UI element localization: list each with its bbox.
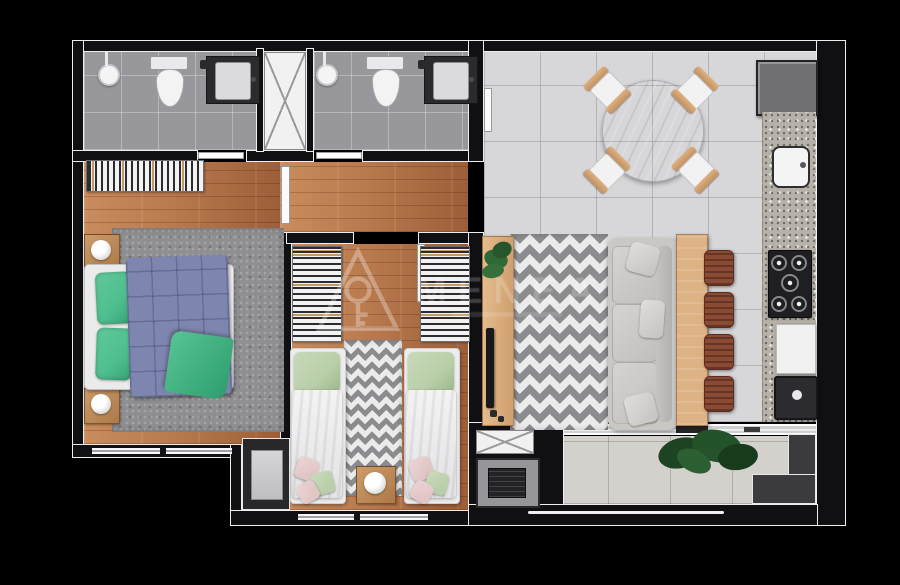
burner-2 (791, 255, 807, 271)
burner-1 (771, 255, 787, 271)
wall-outer-left (72, 40, 84, 458)
toiletries-2 (418, 60, 425, 69)
toilet-tank-2 (366, 56, 404, 70)
living-room-rug (510, 234, 608, 430)
master-window-2 (166, 448, 232, 454)
fridge (756, 60, 818, 116)
master-bedroom-door (281, 166, 290, 224)
wall-bath-bottom-c (362, 150, 474, 162)
wall-hall-bedroom2-left (286, 232, 354, 244)
bed-a-pillow (294, 352, 340, 392)
balcony-bench-horizontal (752, 474, 816, 504)
master-window-1 (92, 448, 160, 454)
burner-4 (771, 296, 787, 312)
balcony-plant (648, 424, 764, 482)
master-clothes-rack (86, 160, 204, 192)
hallway-floor (280, 162, 468, 232)
master-pillow-2 (95, 327, 133, 380)
faucet-1 (251, 77, 256, 82)
wall-outer-right (816, 40, 846, 526)
watermark-text: MENEA (416, 270, 605, 312)
barbecue-grill (476, 458, 540, 508)
shower-arm-1 (105, 52, 108, 66)
entry-door (484, 88, 492, 132)
dishwasher (776, 324, 816, 374)
table-lamp-3 (364, 472, 386, 494)
burner-5 (791, 296, 807, 312)
vanity-1 (206, 56, 260, 104)
wall-shaft-right (306, 48, 314, 152)
bathroom2-door (316, 152, 362, 159)
bathroom1-door (198, 152, 244, 159)
shower-arm-2 (323, 52, 326, 66)
bar-stool-3 (704, 334, 734, 370)
shower-head-icon-2 (316, 64, 338, 86)
watermark-subtext-bar (452, 312, 562, 317)
floor-plan-canvas: MENEA (0, 0, 900, 585)
shower-head-icon-1 (98, 64, 120, 86)
tub-drain (792, 390, 802, 400)
faucet-2 (469, 77, 474, 82)
bed-b-pillow (408, 352, 454, 392)
vanity-2 (424, 56, 478, 104)
watermark-logo-icon (314, 246, 402, 334)
sofa-pillow-mid (639, 299, 666, 339)
sink-basin-2 (433, 62, 469, 100)
wall-outer-top (72, 40, 845, 52)
bedroom2-window-2 (360, 514, 428, 520)
bedroom2-wardrobe (242, 438, 290, 510)
kitchen-faucet (800, 162, 806, 168)
bar-stool-2 (704, 292, 734, 328)
bar-stool-1 (704, 250, 734, 286)
grill-grate (488, 468, 526, 498)
toilet-tank-1 (150, 56, 188, 70)
master-throw-blanket (164, 330, 234, 400)
bar-stool-4 (704, 376, 734, 412)
wardrobe-sliding-door (251, 450, 283, 500)
console-decor-1 (490, 410, 497, 417)
balcony-cabinet (476, 430, 534, 454)
console-decor-2 (498, 416, 504, 422)
wall-bedroom2-bottom (230, 510, 480, 526)
table-lamp-2 (91, 394, 111, 414)
parapet-rail (528, 511, 724, 514)
table-lamp-1 (91, 240, 111, 260)
shaft-cabinet (264, 52, 306, 150)
bedroom2-window-1 (298, 514, 354, 520)
toiletries-1 (200, 60, 207, 69)
tv (486, 328, 494, 408)
burner-3 (781, 274, 799, 292)
sink-basin-1 (215, 62, 251, 100)
